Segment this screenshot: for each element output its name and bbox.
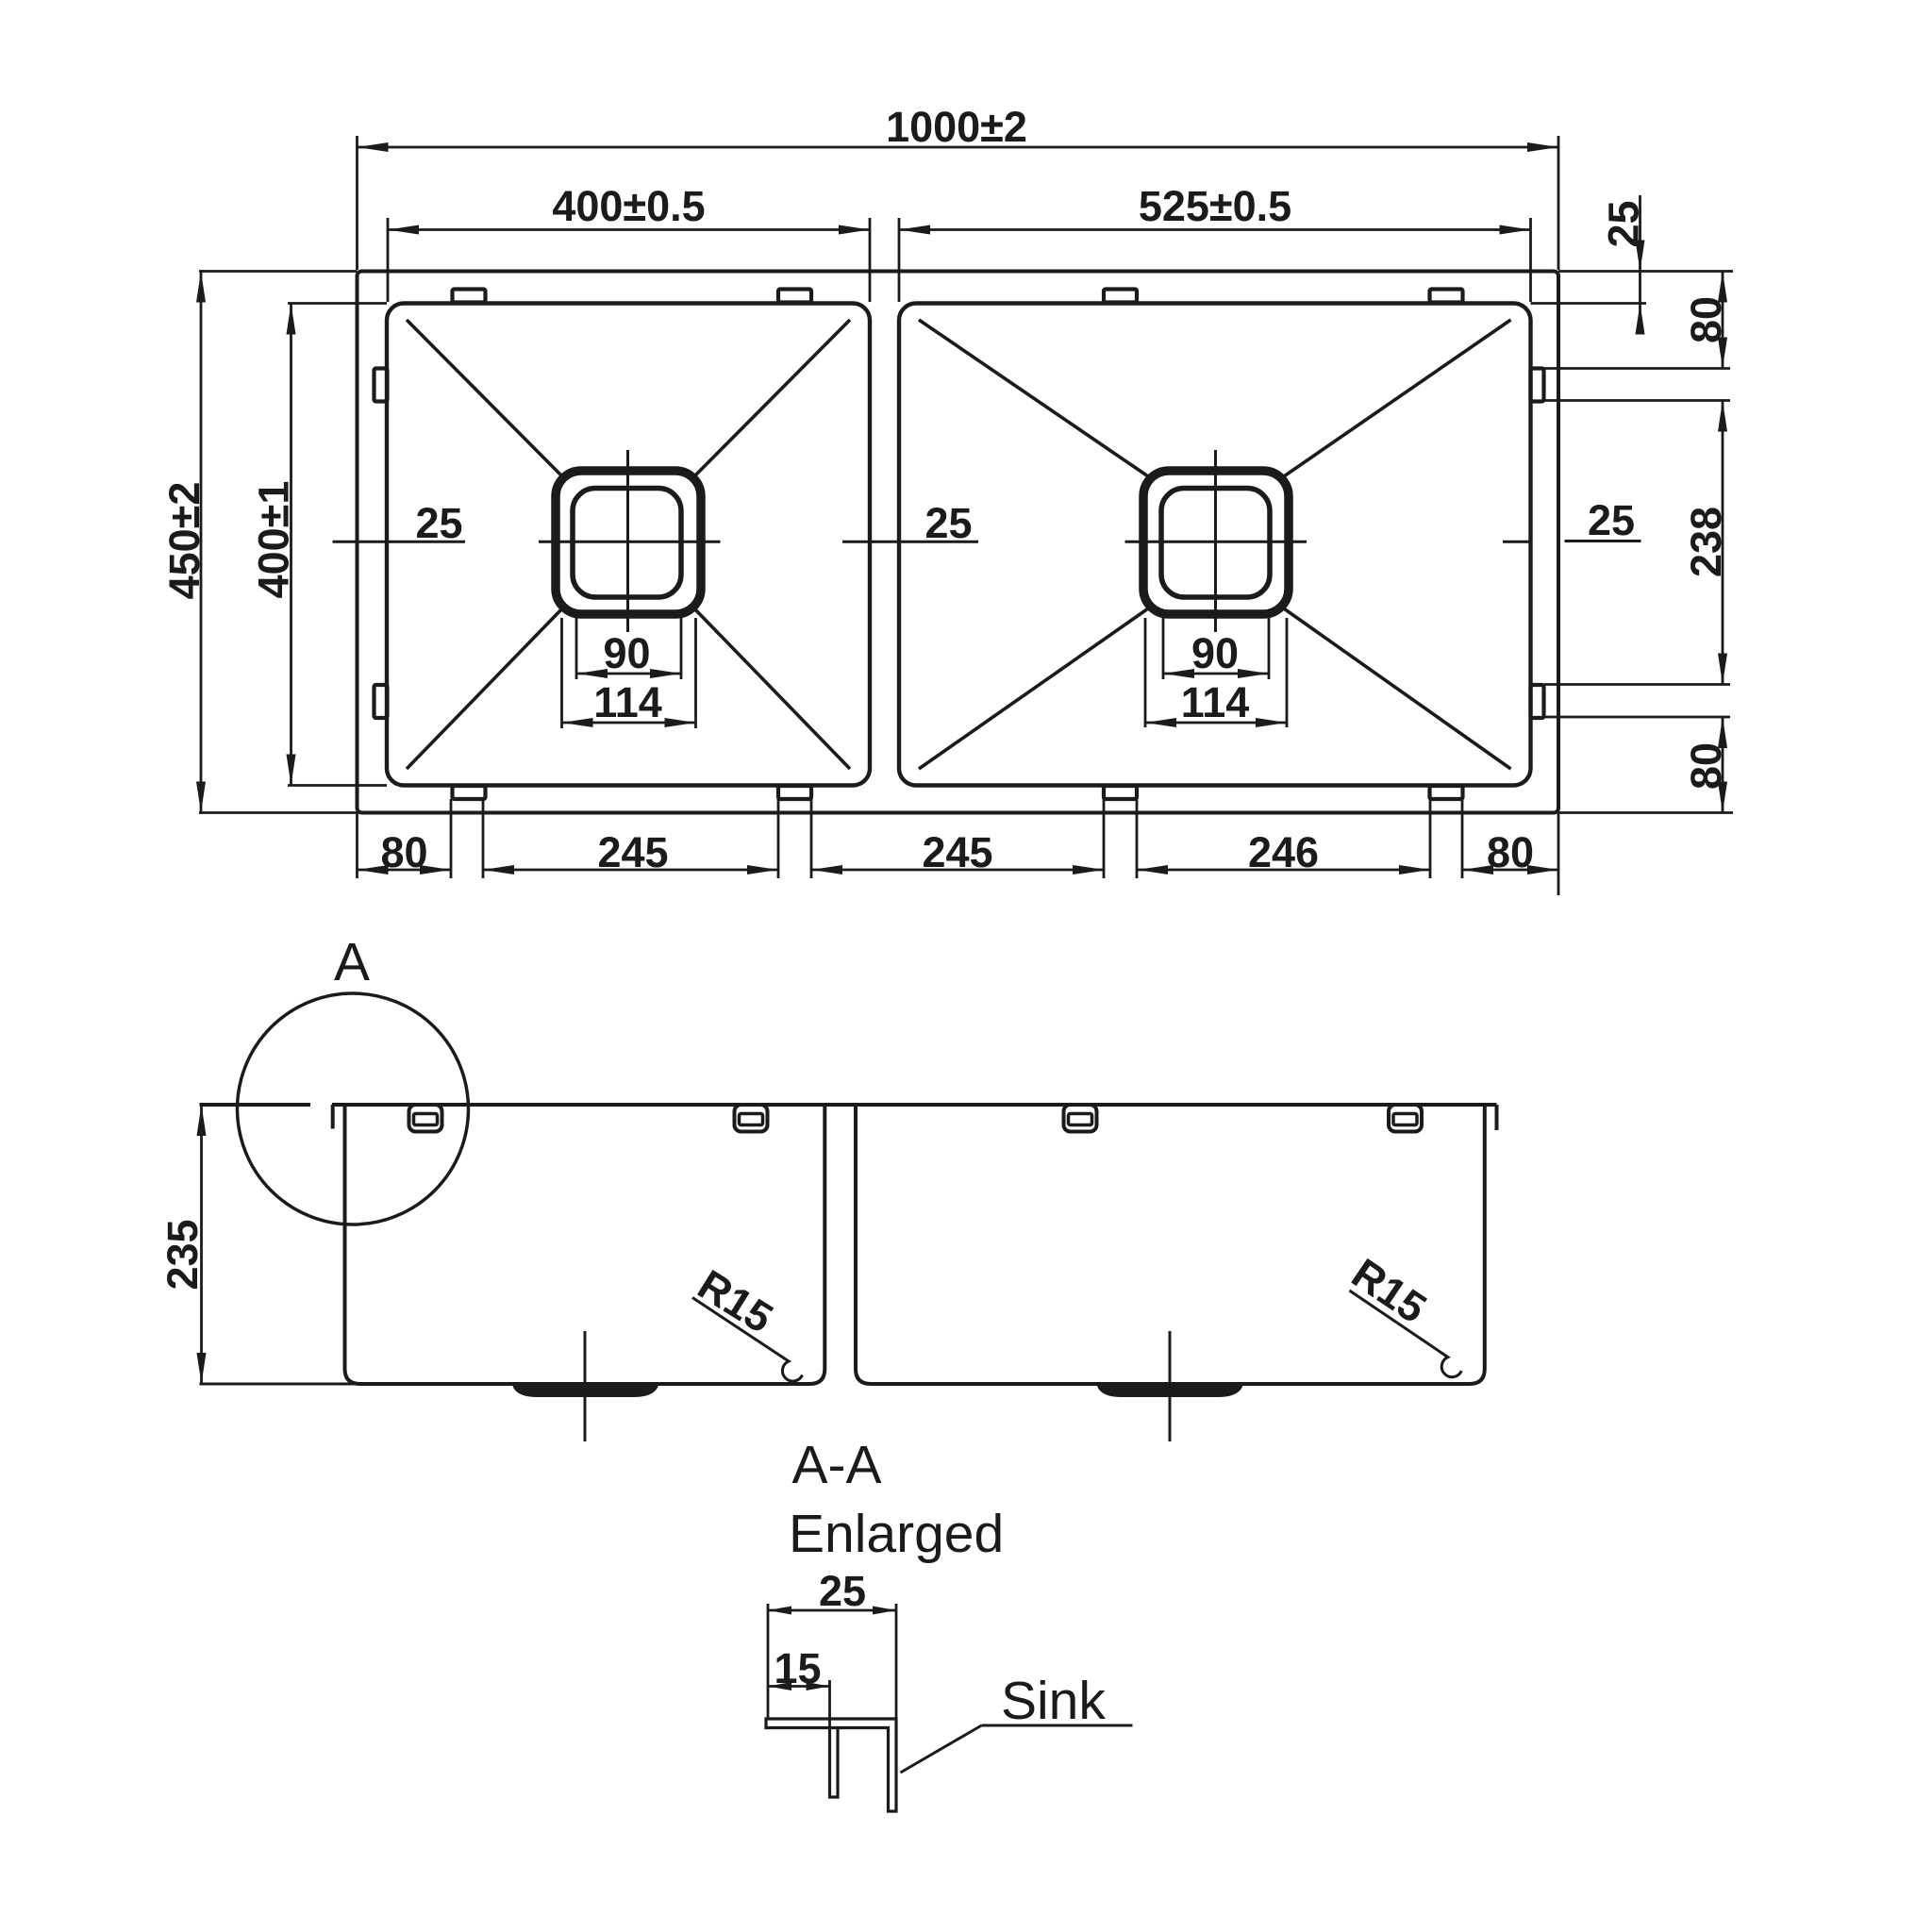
svg-text:400±1: 400±1	[250, 481, 298, 599]
svg-text:114: 114	[1181, 678, 1250, 726]
svg-text:525±0.5: 525±0.5	[1139, 182, 1291, 230]
svg-text:80: 80	[380, 828, 427, 876]
svg-text:R15: R15	[1343, 1249, 1435, 1332]
svg-text:90: 90	[1191, 629, 1239, 677]
svg-text:25: 25	[924, 499, 972, 547]
svg-text:80: 80	[1682, 742, 1730, 790]
svg-text:235: 235	[158, 1219, 207, 1290]
svg-text:80: 80	[1682, 296, 1730, 343]
svg-text:1000±2: 1000±2	[886, 103, 1027, 151]
svg-text:R15: R15	[690, 1260, 781, 1342]
svg-text:238: 238	[1682, 507, 1730, 577]
svg-text:25: 25	[1588, 496, 1635, 544]
svg-text:245: 245	[597, 828, 668, 876]
svg-text:Sink: Sink	[1001, 1671, 1106, 1731]
svg-text:90: 90	[603, 629, 650, 677]
svg-text:450±2: 450±2	[160, 482, 208, 600]
svg-text:246: 246	[1248, 828, 1319, 876]
svg-text:25: 25	[415, 499, 462, 547]
svg-text:400±0.5: 400±0.5	[552, 182, 705, 230]
svg-text:A: A	[334, 932, 370, 992]
svg-text:25: 25	[1600, 200, 1648, 247]
svg-text:15: 15	[774, 1644, 821, 1692]
svg-text:80: 80	[1487, 828, 1534, 876]
svg-text:245: 245	[922, 828, 992, 876]
svg-text:Enlarged: Enlarged	[789, 1504, 1004, 1564]
svg-text:25: 25	[819, 1567, 866, 1615]
svg-text:A-A: A-A	[792, 1435, 882, 1495]
svg-text:114: 114	[593, 678, 662, 726]
